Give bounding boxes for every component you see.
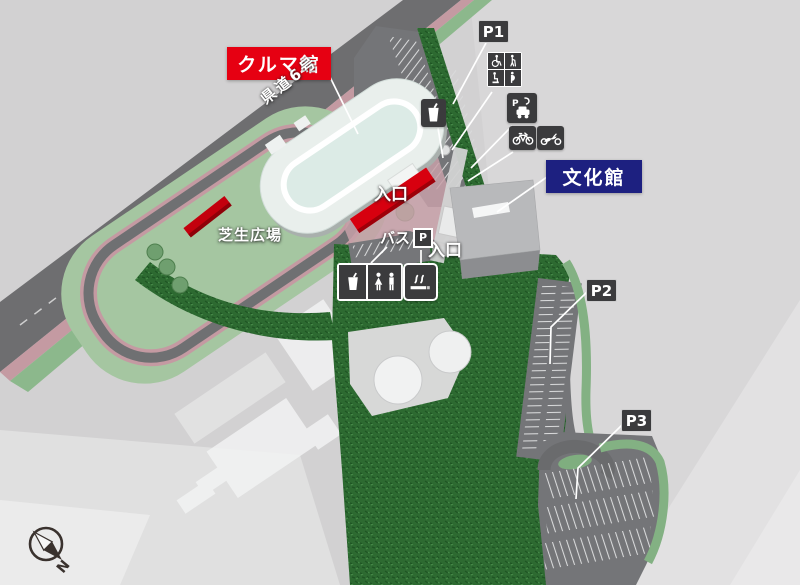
tank-large (374, 356, 422, 404)
entrance-bunka-label: 入口 (428, 236, 462, 261)
toilet-icon (368, 265, 401, 299)
bunka-kan-label: 文化館 (546, 160, 642, 193)
svg-text:P: P (512, 99, 519, 109)
cane-user-icon (505, 53, 521, 69)
compass-north-label: N (54, 557, 74, 576)
smoking-area-icon (403, 263, 438, 301)
wheelchair-icon (488, 53, 504, 69)
motorcycle-icon (537, 126, 564, 150)
p2-label: P2 (586, 279, 617, 302)
facility-map: クルマ館 文化館 P1 P2 P3 入口 入口 バス P 芝生広場 県道6号 (0, 0, 800, 585)
bus-parking-label: バス P (380, 227, 433, 248)
bus-p-badge: P (413, 228, 433, 248)
p1-label: P1 (478, 20, 509, 43)
drink-icon-2 (339, 265, 366, 299)
p3-label: P3 (621, 409, 652, 432)
entrance-main-label: 入口 (374, 180, 408, 205)
rest-facilities (337, 263, 403, 301)
tank-small (429, 331, 471, 373)
maternity-icon (505, 70, 521, 86)
bus-label-text: バス (380, 227, 410, 248)
ev-charging-icon: P (507, 93, 537, 123)
ostomate-icon (488, 70, 504, 86)
accessibility-icons (487, 52, 522, 87)
bunka-kan-building (450, 180, 540, 279)
compass-icon: N (16, 514, 84, 582)
drink-icon (421, 99, 446, 127)
bicycle-icon (509, 126, 536, 150)
toilet-woman-glyph (373, 271, 384, 293)
toilet-man-glyph (386, 271, 397, 293)
lawn-plaza-label: 芝生広場 (218, 224, 282, 245)
